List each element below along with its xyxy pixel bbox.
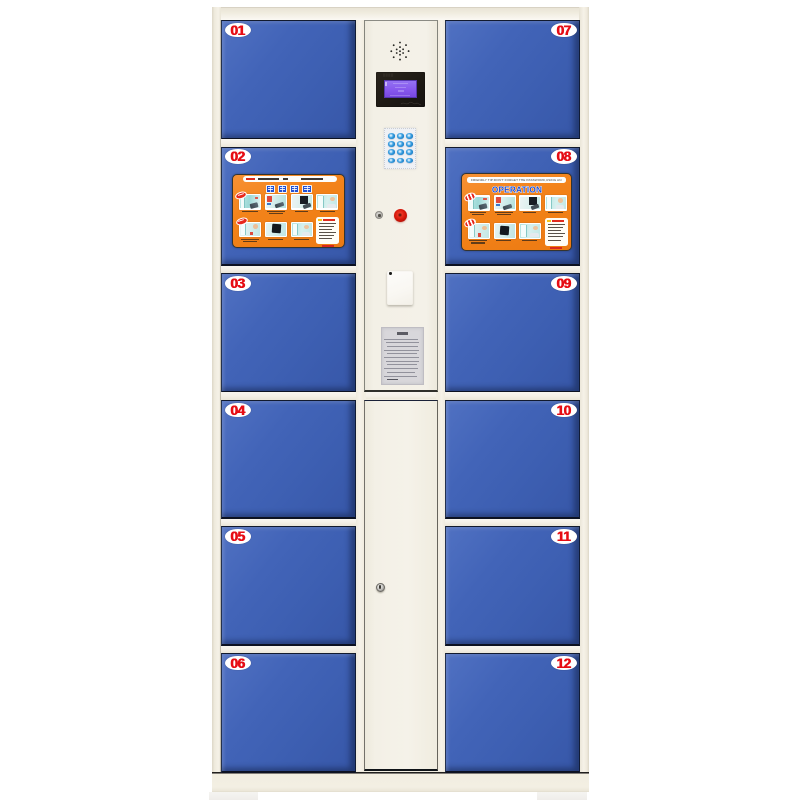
svg-text:OPERATION: OPERATION — [492, 186, 542, 195]
